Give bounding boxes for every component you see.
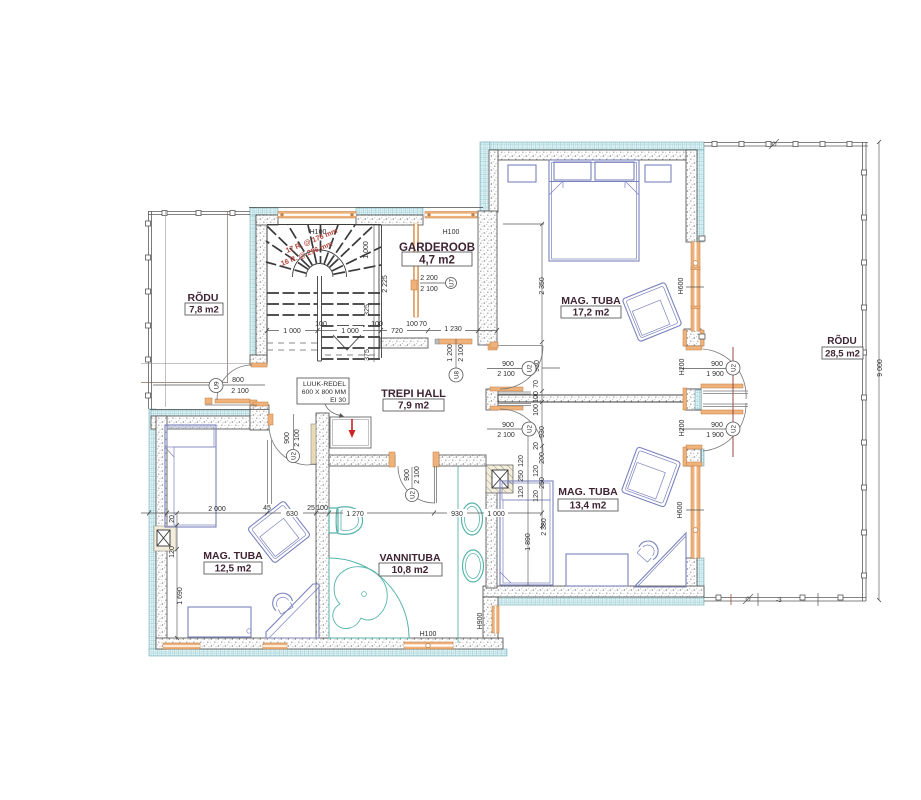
svg-text:10,8 m2: 10,8 m2 [392, 565, 429, 576]
svg-text:2 100: 2 100 [420, 286, 438, 293]
svg-text:9 000: 9 000 [877, 359, 884, 377]
svg-text:MAG. TUBA: MAG. TUBA [558, 486, 618, 498]
svg-text:H100: H100 [310, 229, 327, 236]
svg-text:20: 20 [533, 442, 540, 450]
svg-text:900: 900 [711, 422, 723, 429]
svg-text:4,7 m2: 4,7 m2 [419, 255, 455, 267]
svg-text:120: 120 [533, 465, 540, 477]
svg-text:100: 100 [533, 391, 540, 403]
svg-text:H100: H100 [420, 631, 437, 638]
svg-text:U2: U2 [410, 490, 417, 499]
svg-text:1 000: 1 000 [363, 241, 370, 259]
svg-text:U2: U2 [291, 451, 298, 460]
svg-text:930: 930 [539, 426, 546, 438]
svg-text:20: 20 [169, 515, 176, 523]
svg-text:250: 250 [518, 470, 525, 482]
svg-text:45: 45 [263, 505, 271, 512]
svg-text:1 000: 1 000 [341, 328, 359, 335]
svg-text:70: 70 [533, 380, 540, 388]
svg-text:720: 720 [391, 328, 403, 335]
svg-text:2 380: 2 380 [541, 518, 548, 536]
svg-text:100: 100 [533, 404, 540, 416]
svg-text:H100: H100 [443, 229, 460, 236]
svg-text:1 230: 1 230 [444, 326, 462, 333]
svg-text:RÕDU: RÕDU [827, 334, 856, 347]
svg-text:375: 375 [364, 349, 371, 361]
svg-text:120: 120 [533, 490, 540, 502]
svg-text:7,8 m2: 7,8 m2 [189, 305, 219, 316]
svg-text:H600: H600 [678, 278, 685, 295]
svg-text:120: 120 [518, 455, 525, 467]
svg-text:LUUK-REDEL: LUUK-REDEL [303, 381, 346, 388]
svg-text:2 100: 2 100 [294, 429, 301, 447]
svg-text:1 690: 1 690 [177, 587, 184, 605]
svg-text:2 200: 2 200 [420, 275, 438, 282]
svg-text:2 100: 2 100 [497, 432, 515, 439]
svg-text:100: 100 [371, 321, 383, 328]
svg-text:600 X 800 MM: 600 X 800 MM [302, 389, 347, 396]
svg-text:2 100: 2 100 [231, 388, 249, 395]
svg-text:U2: U2 [527, 424, 534, 433]
svg-text:17,2 m2: 17,2 m2 [573, 308, 610, 319]
svg-text:800: 800 [232, 377, 244, 384]
svg-text:28,5 m2: 28,5 m2 [825, 349, 860, 360]
svg-text:-3: -3 [776, 597, 782, 604]
svg-text:250: 250 [539, 477, 546, 489]
svg-text:U8: U8 [454, 370, 461, 379]
svg-text:H900: H900 [477, 613, 484, 630]
svg-text:EI 30: EI 30 [330, 397, 346, 404]
svg-text:100: 100 [315, 321, 327, 328]
svg-text:U2: U2 [731, 424, 738, 433]
svg-text:900: 900 [502, 422, 514, 429]
svg-text:VANNITUBA: VANNITUBA [379, 552, 440, 564]
svg-text:2 350: 2 350 [539, 277, 546, 295]
svg-text:25: 25 [307, 505, 315, 512]
svg-text:RÕDU: RÕDU [188, 291, 219, 304]
svg-text:TREPI HALL: TREPI HALL [381, 388, 446, 400]
svg-text:900: 900 [711, 361, 723, 368]
svg-text:MAG. TUBA: MAG. TUBA [561, 295, 621, 307]
svg-text:900: 900 [502, 361, 514, 368]
svg-text:2 100: 2 100 [458, 344, 465, 362]
svg-text:1 000: 1 000 [283, 328, 301, 335]
svg-text:1 270: 1 270 [346, 511, 364, 518]
svg-text:120: 120 [169, 546, 176, 558]
svg-text:1 000: 1 000 [487, 511, 505, 518]
svg-text:13,4 m2: 13,4 m2 [570, 501, 607, 512]
svg-text:2 000: 2 000 [208, 506, 226, 513]
svg-text:900: 900 [404, 469, 411, 481]
svg-text:12,5 m2: 12,5 m2 [215, 564, 252, 575]
svg-text:7,9 m2: 7,9 m2 [398, 401, 430, 412]
svg-text:1 890: 1 890 [525, 533, 532, 551]
svg-text:1 900: 1 900 [706, 432, 724, 439]
svg-text:H200: H200 [679, 420, 686, 437]
svg-text:70: 70 [419, 321, 427, 328]
svg-text:930: 930 [451, 511, 463, 518]
svg-text:U7: U7 [449, 278, 456, 287]
svg-text:325: 325 [364, 304, 371, 316]
svg-text:630: 630 [286, 511, 298, 518]
svg-text:1 200: 1 200 [447, 344, 454, 362]
svg-text:900: 900 [284, 432, 291, 444]
svg-text:100: 100 [406, 321, 418, 328]
svg-text:2 100: 2 100 [414, 466, 421, 484]
svg-text:2 100: 2 100 [497, 371, 515, 378]
svg-text:U9: U9 [214, 381, 221, 390]
svg-text:H600: H600 [677, 502, 684, 519]
svg-text:120: 120 [518, 486, 525, 498]
svg-text:200: 200 [539, 452, 546, 464]
svg-text:MAG. TUBA: MAG. TUBA [203, 550, 263, 562]
svg-text:H200: H200 [679, 359, 686, 376]
svg-text:100: 100 [316, 505, 328, 512]
svg-text:U2: U2 [731, 363, 738, 372]
svg-text:2 225: 2 225 [382, 275, 389, 293]
svg-text:U2: U2 [527, 364, 534, 373]
svg-text:1 900: 1 900 [706, 371, 724, 378]
